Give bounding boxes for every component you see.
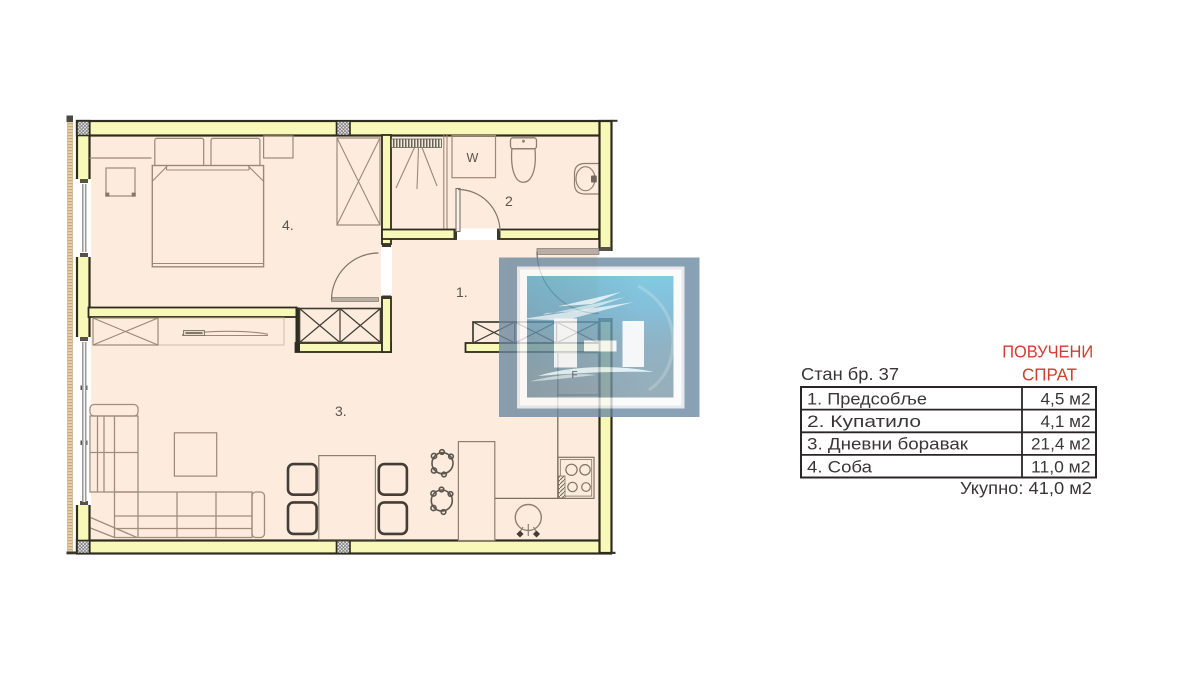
svg-text:Стан бр. 37: Стан бр. 37 bbox=[801, 364, 899, 384]
svg-text:1. Предсобље: 1. Предсобље bbox=[807, 390, 927, 409]
svg-text:3.: 3. bbox=[335, 403, 347, 419]
svg-text:1.: 1. bbox=[456, 284, 468, 300]
svg-text:F: F bbox=[572, 370, 578, 381]
svg-text:Укупно: 41,0 м2: Укупно: 41,0 м2 bbox=[960, 478, 1092, 498]
svg-text:ПОВУЧЕНИ: ПОВУЧЕНИ bbox=[1002, 342, 1093, 362]
svg-text:4.: 4. bbox=[282, 217, 294, 233]
svg-text:4. Соба: 4. Соба bbox=[807, 457, 873, 476]
svg-text:4,1 м2: 4,1 м2 bbox=[1041, 412, 1091, 431]
svg-text:СПРАТ: СПРАТ bbox=[1022, 365, 1077, 385]
svg-text:W: W bbox=[467, 151, 479, 165]
svg-text:11,0 м2: 11,0 м2 bbox=[1031, 457, 1091, 476]
svg-text:4,5 м2: 4,5 м2 bbox=[1041, 390, 1091, 409]
svg-text:2: 2 bbox=[505, 193, 513, 209]
svg-text:21,4 м2: 21,4 м2 bbox=[1031, 435, 1091, 454]
svg-text:3. Дневни боравак: 3. Дневни боравак bbox=[807, 435, 969, 454]
svg-text:2. Купатило: 2. Купатило bbox=[807, 412, 921, 431]
